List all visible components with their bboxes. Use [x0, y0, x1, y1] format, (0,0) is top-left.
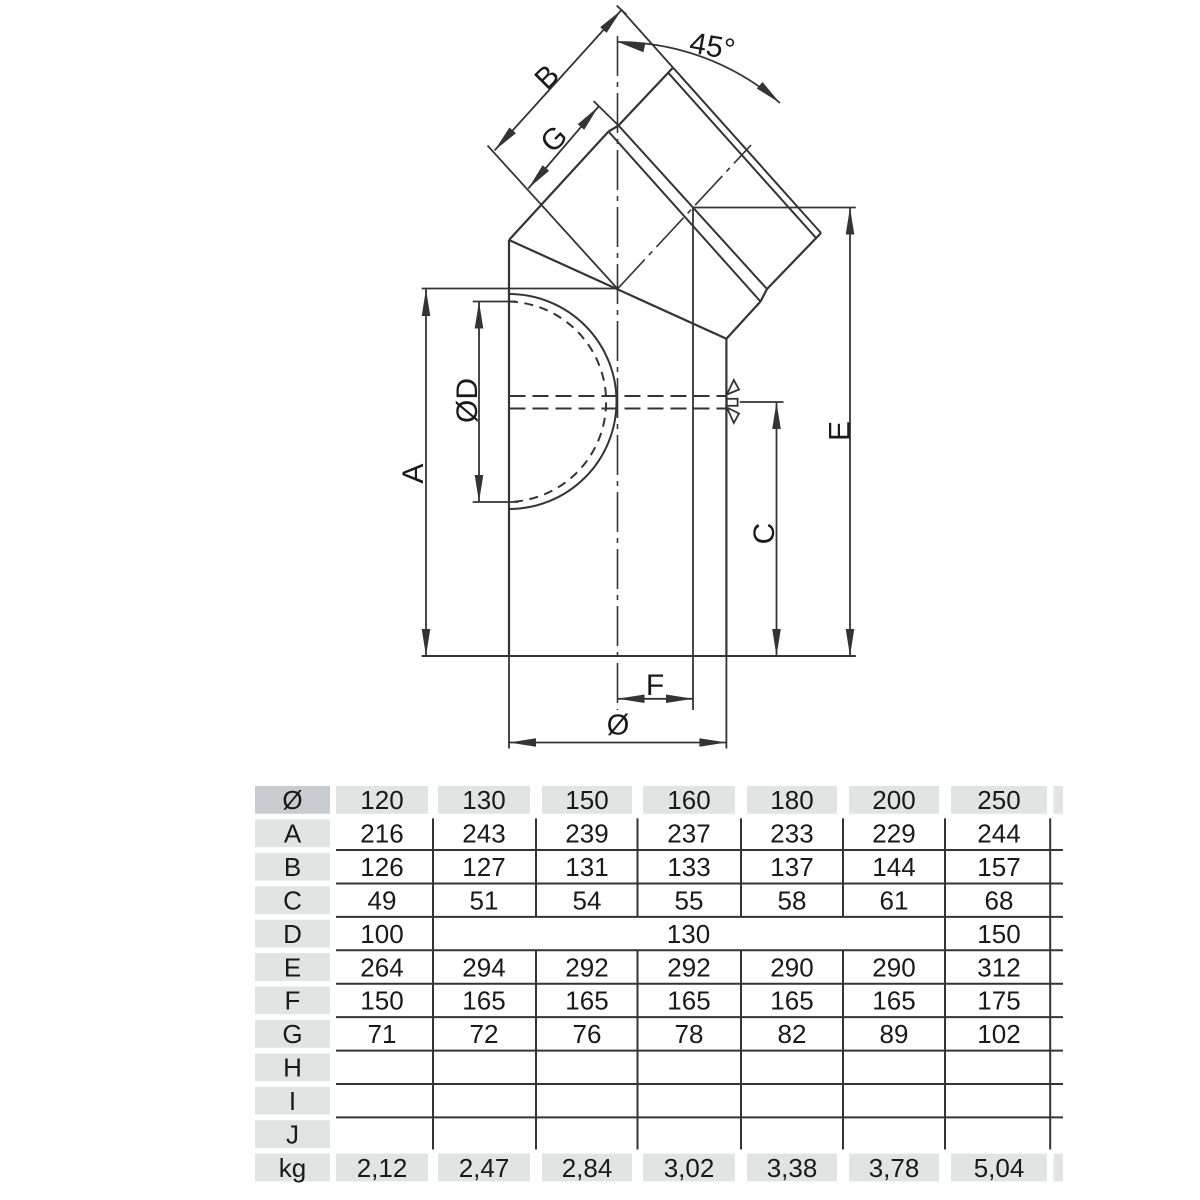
svg-text:312: 312 [977, 952, 1020, 982]
svg-text:294: 294 [462, 952, 505, 982]
svg-text:G: G [282, 1019, 302, 1049]
svg-text:244: 244 [977, 819, 1020, 849]
svg-text:175: 175 [977, 986, 1020, 1016]
svg-text:G: G [534, 119, 574, 159]
svg-text:5,04: 5,04 [974, 1153, 1025, 1183]
svg-text:F: F [285, 986, 301, 1016]
svg-text:E: E [284, 952, 301, 982]
svg-text:150: 150 [977, 919, 1020, 949]
svg-text:137: 137 [770, 852, 813, 882]
svg-text:82: 82 [778, 1019, 807, 1049]
svg-text:Ø: Ø [607, 710, 630, 742]
svg-text:H: H [283, 1053, 302, 1083]
svg-text:45°: 45° [687, 27, 737, 67]
svg-text:2,47: 2,47 [459, 1153, 510, 1183]
svg-text:ØD: ØD [451, 378, 484, 423]
svg-text:290: 290 [872, 952, 915, 982]
svg-text:133: 133 [667, 852, 710, 882]
svg-text:58: 58 [778, 886, 807, 916]
svg-text:68: 68 [985, 886, 1014, 916]
svg-text:165: 165 [872, 986, 915, 1016]
svg-text:B: B [284, 852, 301, 882]
svg-text:180: 180 [770, 785, 813, 815]
svg-text:130: 130 [462, 785, 505, 815]
svg-text:157: 157 [977, 852, 1020, 882]
svg-text:292: 292 [667, 952, 710, 982]
svg-text:B: B [529, 59, 566, 96]
svg-text:165: 165 [770, 986, 813, 1016]
svg-text:72: 72 [470, 1019, 499, 1049]
svg-text:292: 292 [565, 952, 608, 982]
svg-text:J: J [286, 1119, 299, 1149]
svg-text:239: 239 [565, 819, 608, 849]
svg-text:100: 100 [360, 919, 403, 949]
svg-text:49: 49 [368, 886, 397, 916]
svg-text:61: 61 [880, 886, 909, 916]
svg-text:A: A [397, 464, 430, 484]
svg-text:144: 144 [872, 852, 915, 882]
svg-text:229: 229 [872, 819, 915, 849]
svg-text:102: 102 [977, 1019, 1020, 1049]
svg-text:3,78: 3,78 [869, 1153, 920, 1183]
svg-text:51: 51 [470, 886, 499, 916]
svg-text:165: 165 [667, 986, 710, 1016]
svg-text:150: 150 [360, 986, 403, 1016]
svg-text:E: E [824, 421, 857, 441]
svg-text:131: 131 [565, 852, 608, 882]
svg-text:165: 165 [462, 986, 505, 1016]
svg-text:233: 233 [770, 819, 813, 849]
svg-text:I: I [289, 1086, 296, 1116]
svg-text:78: 78 [675, 1019, 704, 1049]
svg-text:150: 150 [565, 785, 608, 815]
svg-text:250: 250 [977, 785, 1020, 815]
svg-text:C: C [748, 523, 781, 545]
svg-text:290: 290 [770, 952, 813, 982]
svg-text:130: 130 [667, 919, 710, 949]
svg-text:55: 55 [675, 886, 704, 916]
svg-text:54: 54 [573, 886, 602, 916]
svg-text:89: 89 [880, 1019, 909, 1049]
svg-text:D: D [283, 919, 302, 949]
svg-text:Ø: Ø [282, 785, 302, 815]
svg-text:216: 216 [360, 819, 403, 849]
svg-text:120: 120 [360, 785, 403, 815]
svg-text:165: 165 [565, 986, 608, 1016]
svg-text:kg: kg [279, 1153, 306, 1183]
svg-text:237: 237 [667, 819, 710, 849]
svg-text:3,02: 3,02 [664, 1153, 715, 1183]
svg-text:126: 126 [360, 852, 403, 882]
svg-text:264: 264 [360, 952, 403, 982]
svg-text:3,38: 3,38 [767, 1153, 818, 1183]
svg-text:200: 200 [872, 785, 915, 815]
svg-text:243: 243 [462, 819, 505, 849]
svg-text:127: 127 [462, 852, 505, 882]
svg-text:160: 160 [667, 785, 710, 815]
svg-text:76: 76 [573, 1019, 602, 1049]
svg-text:2,84: 2,84 [562, 1153, 613, 1183]
svg-text:2,12: 2,12 [357, 1153, 408, 1183]
svg-text:A: A [284, 819, 302, 849]
svg-text:71: 71 [368, 1019, 397, 1049]
svg-text:C: C [283, 886, 302, 916]
svg-text:F: F [646, 669, 664, 702]
